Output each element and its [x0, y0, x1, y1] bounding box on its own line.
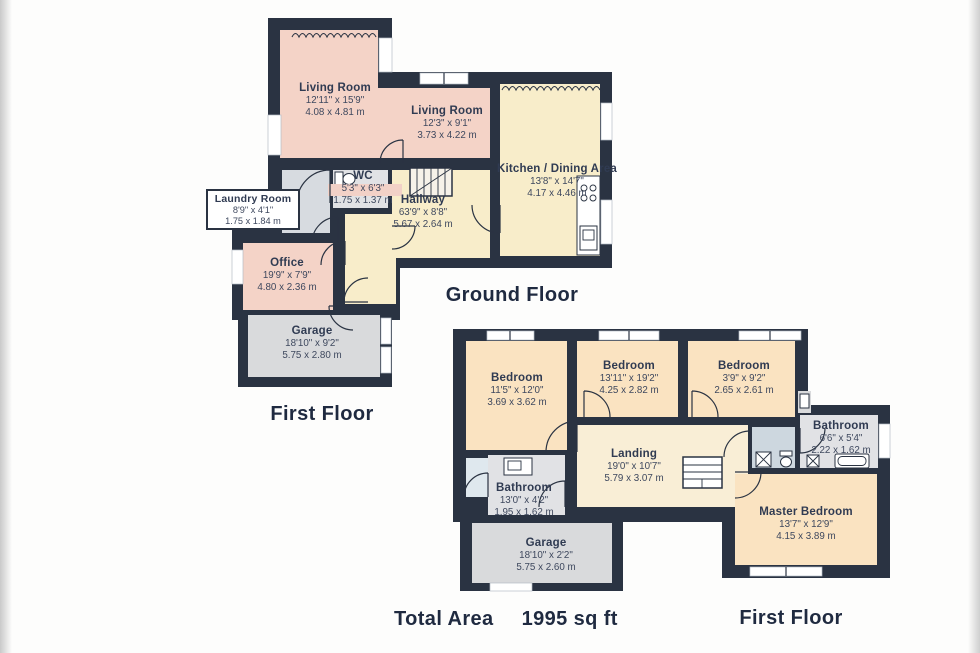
room-dims-metric: 2.65 x 2.61 m: [714, 385, 773, 397]
room-name: Living Room: [299, 82, 371, 95]
room-label-hallway: Hallway 63'9" x 8'8" 5.67 x 2.64 m: [393, 194, 452, 230]
room-name: Office: [257, 257, 316, 270]
room-label-garage-first: Garage 18'10" x 2'2" 5.75 x 2.60 m: [516, 537, 575, 573]
room-dims-imperial: 12'3" x 9'1": [411, 118, 483, 130]
room-label-office: Office 19'9" x 7'9" 4.80 x 2.36 m: [257, 257, 316, 293]
room-dims-metric: 3.73 x 4.22 m: [411, 130, 483, 142]
room-dims-imperial: 6'6" x 5'4": [811, 433, 870, 445]
room-dims-imperial: 19'9" x 7'9": [257, 270, 316, 282]
total-area-label: Total Area: [394, 608, 494, 631]
room-name: Bathroom: [494, 482, 553, 495]
room-dims-metric: 4.25 x 2.82 m: [599, 385, 658, 397]
room-label-bedroom-1: Bedroom 11'5" x 12'0" 3.69 x 3.62 m: [487, 372, 546, 408]
room-label-bathroom-left: Bathroom 13'0" x 4'2" 1.95 x 1.62 m: [494, 482, 553, 518]
total-area: Total Area 1995 sq ft: [394, 608, 618, 631]
room-dims-metric: 4.80 x 2.36 m: [257, 282, 316, 294]
room-dims-imperial: 18'10" x 9'2": [282, 338, 341, 350]
room-dims-metric: 5.75 x 2.80 m: [282, 350, 341, 362]
entry-vestibule-floor: [345, 214, 396, 304]
room-label-bedroom-2: Bedroom 13'11" x 19'2" 4.25 x 2.82 m: [599, 360, 658, 396]
room-label-living-room-1: Living Room 12'11" x 15'9" 4.08 x 4.81 m: [299, 82, 371, 118]
room-dims-imperial: 13'11" x 19'2": [599, 373, 658, 385]
room-name: Landing: [604, 448, 663, 461]
room-dims-metric: 1.75 x 1.37 m: [333, 195, 392, 207]
room-dims-imperial: 5'3" x 6'3": [333, 183, 392, 195]
room-dims-imperial: 8'9" x 4'1": [208, 205, 298, 216]
room-label-laundry-callout: Laundry Room 8'9" x 4'1" 1.75 x 1.84 m: [206, 189, 300, 230]
room-label-living-room-2: Living Room 12'3" x 9'1" 3.73 x 4.22 m: [411, 105, 483, 141]
room-name: Bedroom: [714, 360, 773, 373]
room-label-bedroom-3: Bedroom 3'9" x 9'2" 2.65 x 2.61 m: [714, 360, 773, 396]
room-label-kitchen: Kitchen / Dining Area 13'8" x 14'7" 4.17…: [497, 163, 617, 199]
room-dims-imperial: 11'5" x 12'0": [487, 385, 546, 397]
room-dims-imperial: 19'0" x 10'7": [604, 461, 663, 473]
first-floor-title: First Floor: [739, 607, 842, 630]
room-dims-imperial: 12'11" x 15'9": [299, 95, 371, 107]
room-dims-metric: 3.69 x 3.62 m: [487, 397, 546, 409]
room-dims-metric: 1.95 x 1.62 m: [494, 507, 553, 519]
room-dims-metric: 4.17 x 4.46 m: [497, 188, 617, 200]
room-name: Hallway: [393, 194, 452, 207]
ground-floor-staircase: [410, 168, 452, 196]
room-dims-metric: 2.22 x 1.62 m: [811, 445, 870, 457]
room-dims-metric: 5.79 x 3.07 m: [604, 473, 663, 485]
room-label-master-bedroom: Master Bedroom 13'7" x 12'9" 4.15 x 3.89…: [759, 506, 853, 542]
floorplan-graphics: [0, 0, 980, 653]
room-dims-imperial: 13'7" x 12'9": [759, 519, 853, 531]
room-dims-metric: 5.75 x 2.60 m: [516, 562, 575, 574]
room-name: Living Room: [411, 105, 483, 118]
room-dims-imperial: 18'10" x 2'2": [516, 550, 575, 562]
room-label-garage-ground: Garage 18'10" x 9'2" 5.75 x 2.80 m: [282, 325, 341, 361]
room-name: Garage: [516, 537, 575, 550]
room-dims-metric: 4.15 x 3.89 m: [759, 531, 853, 543]
room-dims-metric: 1.75 x 1.84 m: [208, 216, 298, 227]
room-name: Bedroom: [599, 360, 658, 373]
closet-floor: [466, 458, 488, 497]
room-dims-metric: 4.08 x 4.81 m: [299, 107, 371, 119]
ground-floor-title: Ground Floor: [446, 284, 579, 307]
ground-plan-secondary-title: First Floor: [270, 403, 373, 426]
room-name: Bathroom: [811, 420, 870, 433]
room-dims-imperial: 13'8" x 14'7": [497, 176, 617, 188]
room-name: Kitchen / Dining Area: [497, 163, 617, 176]
room-name: Bedroom: [487, 372, 546, 385]
room-label-landing: Landing 19'0" x 10'7" 5.79 x 3.07 m: [604, 448, 663, 484]
room-dims-metric: 5.67 x 2.64 m: [393, 219, 452, 231]
toilet-icon: [780, 451, 792, 456]
room-name: Laundry Room: [208, 193, 298, 205]
room-label-wc: WC 5'3" x 6'3" 1.75 x 1.37 m: [333, 170, 392, 206]
room-dims-imperial: 13'0" x 4'2": [494, 495, 553, 507]
total-area-value: 1995 sq ft: [522, 608, 618, 631]
room-name: Master Bedroom: [759, 506, 853, 519]
room-name: WC: [333, 170, 392, 183]
room-name: Garage: [282, 325, 341, 338]
first-floor-staircase: [683, 457, 722, 488]
room-label-bathroom-right: Bathroom 6'6" x 5'4" 2.22 x 1.62 m: [811, 420, 870, 456]
room-dims-imperial: 63'9" x 8'8": [393, 207, 452, 219]
room-dims-imperial: 3'9" x 9'2": [714, 373, 773, 385]
